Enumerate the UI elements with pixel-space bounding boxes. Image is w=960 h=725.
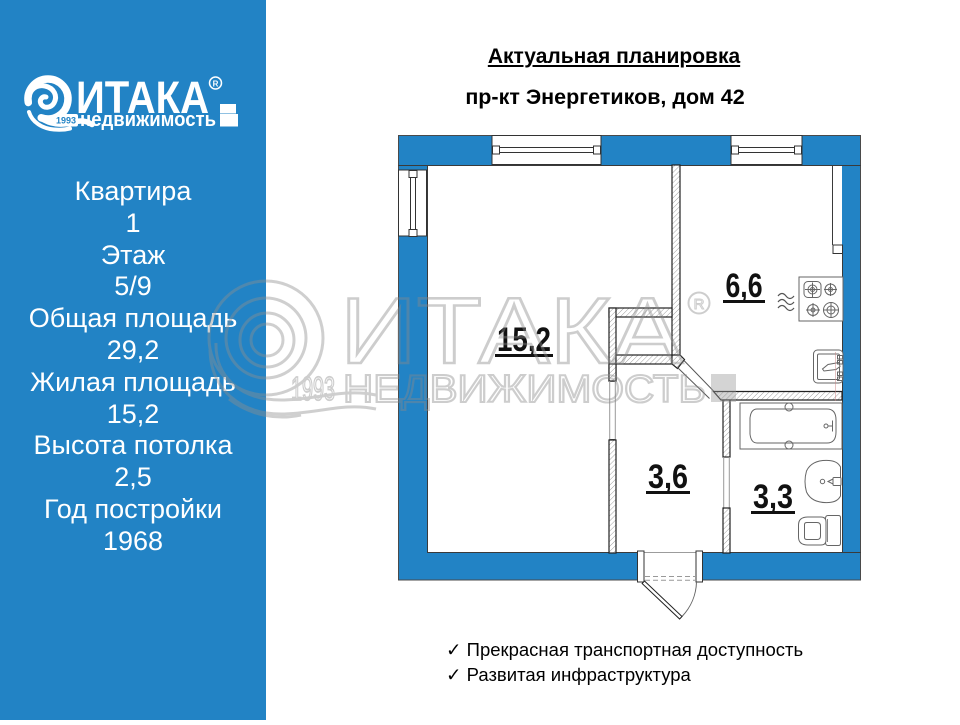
svg-text:3,3: 3,3 [753, 478, 793, 516]
svg-text:6,6: 6,6 [726, 267, 763, 305]
svg-text:3,6: 3,6 [648, 458, 688, 496]
svg-text:15,2: 15,2 [497, 321, 551, 359]
